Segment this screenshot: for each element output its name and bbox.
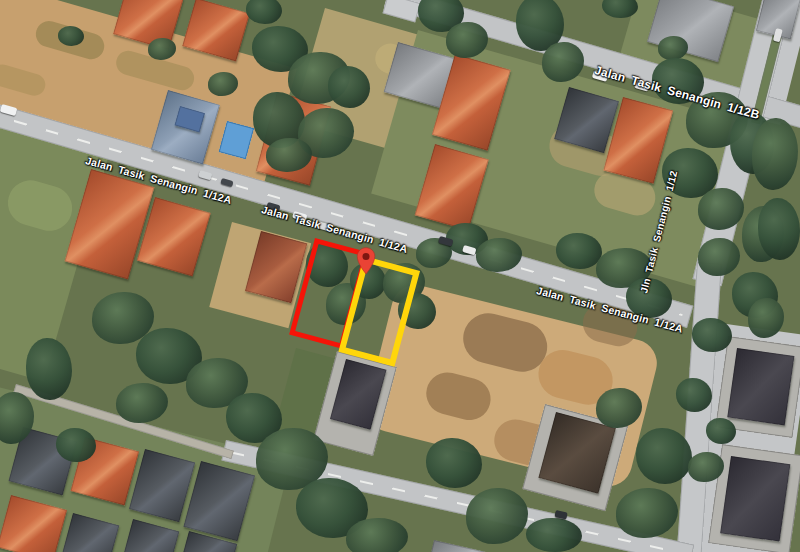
- satellite-map-canvas[interactable]: Jalan Tasik Senangin 1/12BJalan Tasik Se…: [0, 0, 800, 552]
- tree: [466, 488, 528, 544]
- tree: [426, 438, 482, 488]
- tree: [346, 518, 408, 552]
- tree: [692, 318, 732, 352]
- tree: [246, 0, 282, 24]
- tree: [698, 238, 740, 276]
- tree: [116, 383, 168, 423]
- road: [382, 0, 420, 23]
- tree: [56, 428, 96, 462]
- house-roof: [720, 456, 790, 542]
- house-roof: [727, 348, 794, 425]
- tree: [328, 66, 370, 108]
- tree: [616, 488, 678, 538]
- tree: [26, 338, 72, 400]
- tree: [556, 233, 602, 269]
- pin-icon: [356, 246, 376, 276]
- tree: [58, 26, 84, 46]
- tree: [636, 428, 692, 484]
- tree: [752, 118, 798, 190]
- tree: [706, 418, 736, 444]
- tree: [758, 198, 800, 260]
- tree: [526, 518, 582, 552]
- tree: [676, 378, 712, 412]
